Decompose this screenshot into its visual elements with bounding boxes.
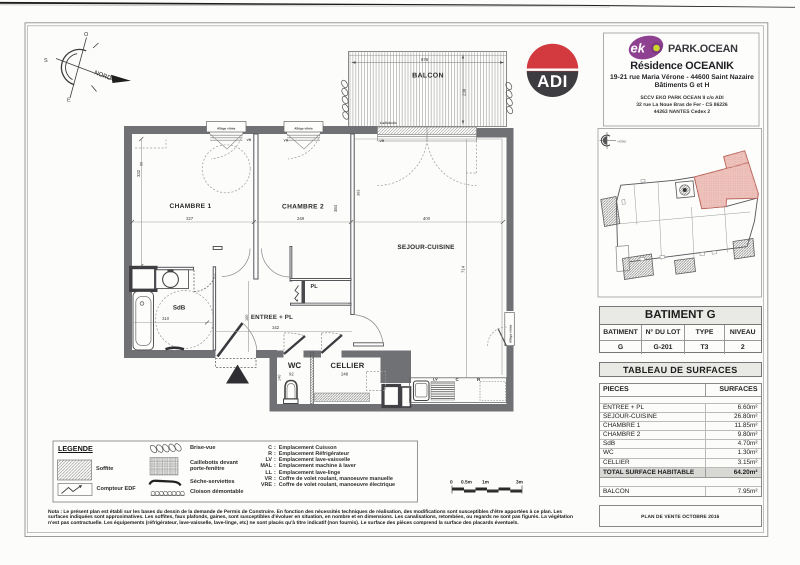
svg-text:1m: 1m bbox=[482, 480, 489, 486]
svg-text:LV: LV bbox=[433, 376, 438, 381]
svg-text:CHAMBRE 1: CHAMBRE 1 bbox=[170, 203, 212, 210]
svg-text:327: 327 bbox=[186, 216, 194, 221]
svg-text:ENTREE + PL: ENTREE + PL bbox=[251, 314, 293, 321]
svg-text:NORD: NORD bbox=[618, 139, 628, 143]
svg-text:92: 92 bbox=[289, 372, 294, 377]
svg-text:O: O bbox=[84, 32, 89, 38]
svg-text:0.5m: 0.5m bbox=[461, 480, 472, 486]
svg-text:BALCON: BALCON bbox=[412, 73, 444, 80]
svg-text:310: 310 bbox=[162, 316, 170, 321]
svg-text:384: 384 bbox=[333, 204, 338, 212]
svg-text:E: E bbox=[67, 98, 71, 104]
svg-text:332: 332 bbox=[136, 169, 141, 177]
svg-text:238: 238 bbox=[461, 88, 466, 96]
svg-text:WC: WC bbox=[288, 361, 302, 370]
svg-text:878: 878 bbox=[421, 57, 429, 62]
svg-text:363: 363 bbox=[357, 190, 361, 196]
svg-text:400: 400 bbox=[423, 216, 431, 221]
svg-text:VR: VR bbox=[247, 138, 252, 142]
svg-text:3m: 3m bbox=[516, 480, 523, 486]
svg-text:SdB: SdB bbox=[173, 304, 186, 311]
svg-text:NORD: NORD bbox=[93, 69, 113, 82]
svg-text:342: 342 bbox=[272, 325, 280, 330]
svg-text:Caillebotis: Caillebotis bbox=[380, 121, 397, 125]
svg-text:ek: ek bbox=[631, 41, 646, 56]
svg-text:Allège vitrée: Allège vitrée bbox=[508, 324, 512, 343]
svg-text:714: 714 bbox=[460, 265, 465, 273]
svg-text:CELLIER: CELLIER bbox=[331, 361, 365, 370]
svg-text:SEJOUR-CUISINE: SEJOUR-CUISINE bbox=[397, 244, 455, 251]
svg-text:0: 0 bbox=[450, 480, 453, 486]
svg-text:140: 140 bbox=[278, 375, 282, 381]
svg-text:90: 90 bbox=[140, 162, 144, 166]
svg-text:VR: VR bbox=[380, 139, 385, 143]
svg-text:VR: VR bbox=[284, 138, 289, 142]
svg-text:CHAMBRE 2: CHAMBRE 2 bbox=[282, 203, 324, 210]
svg-text:Allège vitrée: Allège vitrée bbox=[294, 127, 313, 131]
svg-text:PL: PL bbox=[311, 284, 319, 290]
svg-text:ADI: ADI bbox=[537, 72, 568, 91]
svg-text:249: 249 bbox=[297, 216, 305, 221]
svg-text:248: 248 bbox=[341, 372, 349, 377]
svg-text:S: S bbox=[44, 58, 48, 64]
svg-text:Allège vitrée: Allège vitrée bbox=[217, 127, 236, 131]
svg-text:160: 160 bbox=[245, 315, 249, 321]
